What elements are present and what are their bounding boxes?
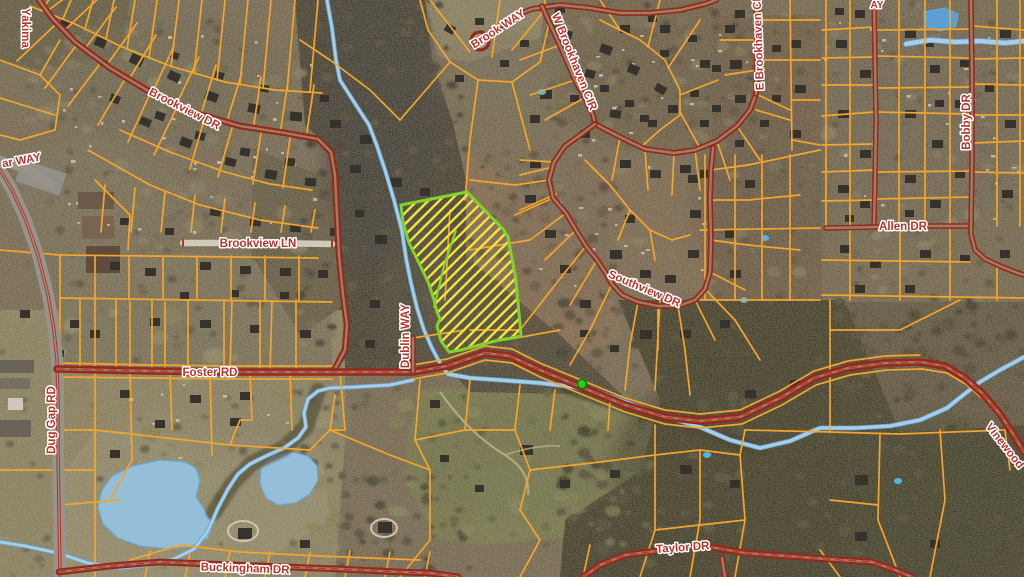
svg-text:Allen DR: Allen DR: [879, 221, 928, 233]
svg-text:AY: AY: [871, 0, 884, 11]
svg-text:Yakima: Yakima: [19, 8, 31, 48]
svg-text:Foster RD: Foster RD: [183, 367, 238, 379]
svg-text:Brookview LN: Brookview LN: [220, 238, 297, 250]
svg-text:Dug Gap RD: Dug Gap RD: [46, 386, 58, 454]
svg-text:Bobby DR: Bobby DR: [961, 94, 973, 150]
svg-text:Dublin WAY: Dublin WAY: [400, 304, 412, 368]
